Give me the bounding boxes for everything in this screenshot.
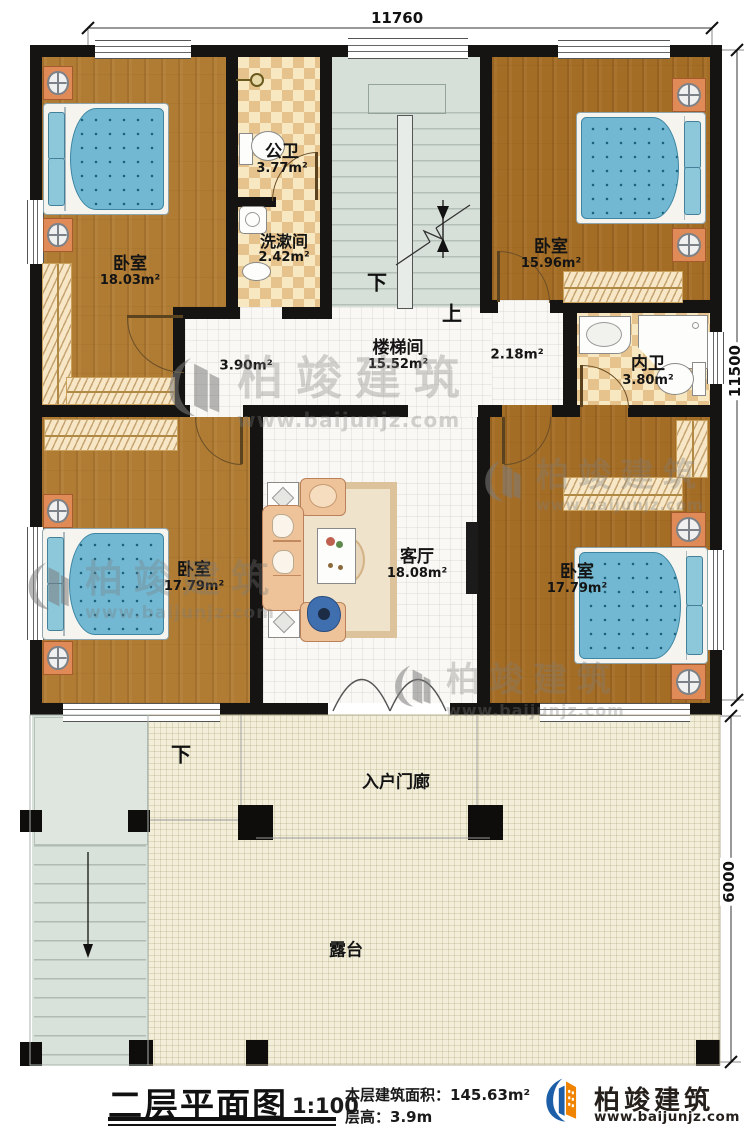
flower-decor-icon <box>328 563 333 568</box>
flower-decor-icon <box>338 565 343 570</box>
room-label-bedroom-tl: 卧室 18.03m² <box>100 255 160 289</box>
wall-btr-bottom-stub <box>480 300 498 313</box>
room-label-bedroom-tr: 卧室 15.96m² <box>521 238 581 272</box>
stairwell-landing-outline <box>368 84 446 114</box>
wall-baths-stairwell <box>320 57 332 319</box>
dimension-right-upper: 11500 <box>726 342 744 400</box>
lamp-icon <box>677 233 701 257</box>
wall-corridor-ensuite <box>563 301 577 417</box>
room-label-terrace: 露台 <box>329 941 363 960</box>
sofa-main <box>262 505 304 611</box>
shower-drain-icon <box>692 322 699 329</box>
plan-area-value: 145.63m² <box>450 1086 530 1104</box>
room-label-public-bath: 公卫 3.77m² <box>256 143 307 177</box>
wardrobe-bbl <box>44 419 178 451</box>
room-label-ensuite: 内卫 3.80m² <box>622 355 673 389</box>
plan-height-line: 层高：3.9m <box>345 1106 432 1127</box>
lamp-icon <box>677 83 701 107</box>
door-leaf <box>497 251 500 302</box>
room-label-living: 客厅 18.08m² <box>387 548 447 582</box>
window-left-bedroom-tl <box>27 200 44 264</box>
stair-up-label: 上 <box>442 298 462 327</box>
outdoor-stair-treads <box>34 845 146 1065</box>
closet-bbr-right <box>676 420 708 478</box>
bed-pillow <box>48 112 65 160</box>
wall-btl-baths <box>226 57 238 307</box>
bed-mattress <box>69 533 164 635</box>
area-label-corridor-left: 3.90m² <box>219 358 272 373</box>
throw-pillow <box>272 550 294 574</box>
bed-pillow <box>686 605 703 655</box>
room-label-washroom: 洗漱间 2.42m² <box>258 233 309 265</box>
bed-pillow <box>684 121 701 169</box>
room-label-porch: 入户门廊 <box>362 773 430 792</box>
sofa-cushion-divider <box>273 575 301 576</box>
wardrobe-bbr <box>563 477 683 511</box>
wall-stairwell-btr <box>480 57 492 313</box>
towel-ring-icon <box>250 73 264 87</box>
plan-area-line: 本层建筑面积：145.63m² <box>345 1084 530 1105</box>
wardrobe-btl-bottom <box>66 377 175 405</box>
area-label-corridor-right: 2.18m² <box>490 347 543 362</box>
window-right-ensuite <box>707 332 724 384</box>
stair-down-label: 下 <box>367 267 387 296</box>
lamp-icon <box>47 71 68 95</box>
person-head-icon <box>318 608 330 620</box>
window-right-bedroom-br <box>707 550 724 650</box>
ensuite-toilet-tank <box>692 362 706 396</box>
bed-mattress <box>581 117 679 219</box>
column <box>468 805 503 840</box>
wardrobe-btr <box>563 271 683 303</box>
sofa-cushion-divider <box>273 540 301 541</box>
wall-bbr-top-mid <box>552 405 580 417</box>
column <box>246 1040 268 1066</box>
floor-plan-page: 11760 11500 6000 卧室 18.03m² 公卫 3.77m² 洗漱… <box>0 0 750 1128</box>
person-figure <box>307 596 341 632</box>
door-leaf <box>315 152 318 200</box>
column <box>238 805 273 840</box>
armchair-cushion <box>309 484 337 508</box>
wall-bbl-top-left <box>42 405 190 417</box>
window-top-right <box>558 40 670 59</box>
lamp-icon <box>676 517 701 542</box>
terrace-floor <box>148 715 720 1065</box>
side-table-decor-icon <box>273 611 296 634</box>
bed-bottom-left <box>42 528 169 640</box>
wall-hall-bottom <box>243 405 408 417</box>
nightstand <box>672 78 706 112</box>
nightstand <box>671 664 706 700</box>
lamp-icon <box>47 223 68 247</box>
door-leaf <box>580 365 583 407</box>
ensuite-basin-icon <box>586 322 622 347</box>
lamp-icon <box>47 646 68 670</box>
bed-top-right <box>576 112 706 224</box>
door-leaf <box>240 417 243 464</box>
dimension-right-lower: 6000 <box>720 858 738 906</box>
bed-top-left <box>43 103 169 215</box>
plan-height-label: 层高： <box>345 1108 390 1126</box>
nightstand <box>671 512 706 547</box>
brand-website: www.baijunjz.com <box>594 1109 740 1125</box>
flower-decor-icon <box>336 541 343 548</box>
plan-height-value: 3.9m <box>390 1108 432 1126</box>
nightstand <box>672 228 706 262</box>
column <box>128 810 150 832</box>
outdoor-stair-down-label: 下 <box>171 739 191 768</box>
french-door-opening <box>328 703 450 715</box>
window-top-left <box>95 40 191 59</box>
wall-hall-top-b <box>282 307 332 319</box>
column <box>20 810 42 832</box>
throw-pillow <box>272 514 294 538</box>
washing-machine-door-icon <box>245 212 260 227</box>
stairwell-rail <box>397 115 413 309</box>
flower-decor-icon <box>326 537 335 546</box>
plan-area-label: 本层建筑面积： <box>345 1086 450 1104</box>
door-leaf <box>502 417 505 464</box>
lamp-icon <box>47 499 68 523</box>
wall-bbr-top-right <box>628 405 710 417</box>
lamp-icon <box>676 669 701 695</box>
bed-pillow <box>48 158 65 206</box>
nightstand <box>43 66 73 100</box>
bed-pillow <box>47 537 64 585</box>
bed-mattress <box>70 108 164 210</box>
window-bottom-bedroom-bl <box>63 703 220 722</box>
column <box>696 1040 720 1066</box>
dimension-top: 11760 <box>368 9 426 27</box>
nightstand <box>43 641 73 675</box>
window-top-stairwell <box>348 38 468 59</box>
column <box>20 1042 42 1066</box>
tv-unit <box>466 522 478 594</box>
coffee-table <box>317 528 356 584</box>
nightstand <box>43 494 73 528</box>
room-label-bedroom-bl: 卧室 17.79m² <box>164 561 224 595</box>
wall-hall-top-a <box>185 307 240 319</box>
armchair <box>300 478 346 516</box>
room-label-bedroom-br: 卧室 17.79m² <box>547 563 607 597</box>
bed-pillow <box>684 167 701 215</box>
wall-living-bbr-stub <box>478 405 502 417</box>
bed-pillow <box>686 556 703 606</box>
room-label-stair-hall: 楼梯间 15.52m² <box>368 339 428 373</box>
nightstand <box>43 218 73 252</box>
brand-logo-icon <box>543 1077 589 1123</box>
door-leaf <box>127 315 183 318</box>
title-underline-thin <box>108 1124 336 1126</box>
wall-living-bbr <box>477 417 490 703</box>
column <box>129 1040 153 1066</box>
bed-pillow <box>47 583 64 631</box>
window-bottom-bedroom-br <box>540 703 690 722</box>
